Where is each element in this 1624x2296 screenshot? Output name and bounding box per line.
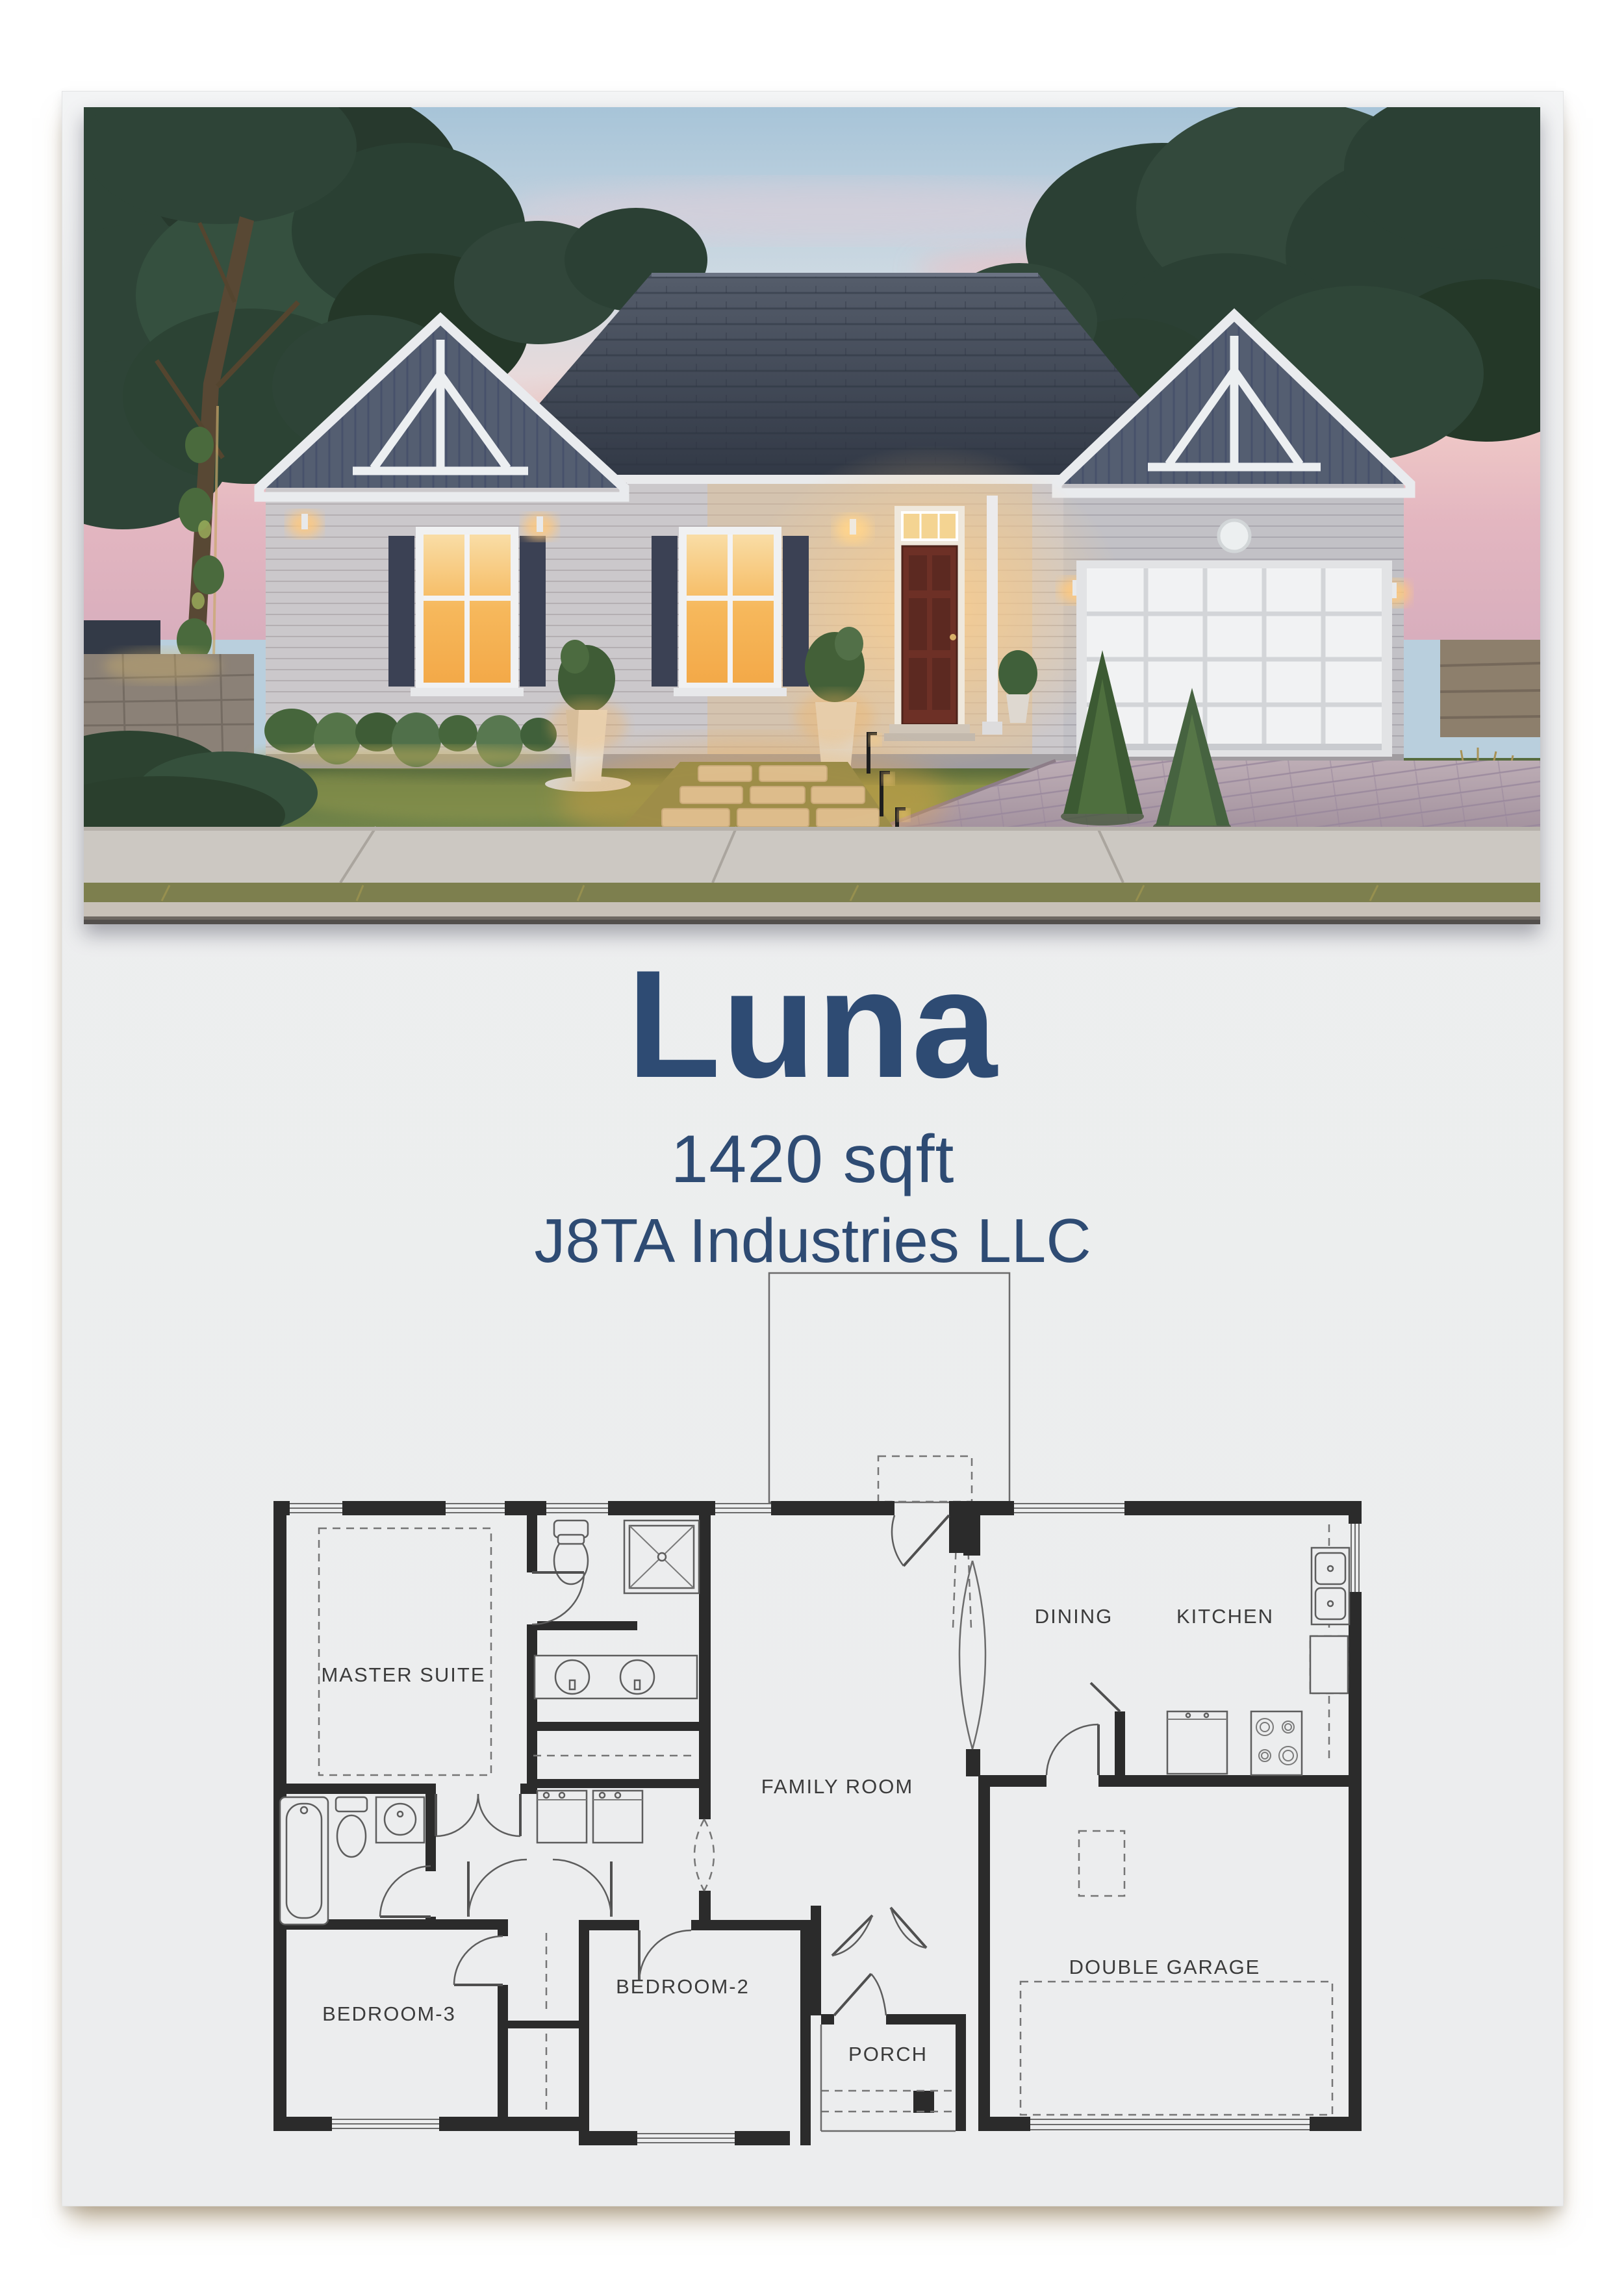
gable-medallion: [1219, 520, 1250, 551]
garage-pad-dashed: [1079, 1831, 1124, 1896]
plan-title: Luna: [62, 948, 1563, 1101]
room-label-bedroom-3: BEDROOM-3: [322, 2002, 456, 2025]
floor-plan-drawing: MASTER SUITE FAMILY ROOM DINING KITCHEN …: [273, 1267, 1365, 2170]
room-labels: MASTER SUITE FAMILY ROOM DINING KITCHEN …: [321, 1605, 1274, 2065]
room-label-kitchen: KITCHEN: [1176, 1605, 1274, 1628]
patio-outline: [769, 1273, 1009, 1502]
room-label-bedroom-2: BEDROOM-2: [616, 1975, 750, 1998]
sidewalk: [84, 827, 1540, 924]
window-right: [652, 527, 809, 696]
bed-dashed: [319, 1528, 491, 1775]
cased-opening: [959, 1561, 972, 1749]
garage-door: [1076, 561, 1392, 757]
builder-name: J8TA Industries LLC: [62, 1210, 1563, 1272]
stoop-dashed: [878, 1456, 972, 1502]
flyer-page: Luna 1420 sqft J8TA Industries LLC: [62, 91, 1564, 2206]
flyer-canvas: Luna 1420 sqft J8TA Industries LLC: [0, 0, 1624, 2296]
windows: [290, 1504, 1359, 2143]
garage-door-dashed: [1021, 1982, 1332, 2115]
room-label-master-suite: MASTER SUITE: [321, 1663, 485, 1686]
fixtures: [280, 1520, 1349, 1924]
window-left: [388, 527, 546, 696]
porch-outline: [821, 2025, 956, 2131]
room-label-family-room: FAMILY ROOM: [761, 1775, 913, 1798]
plan-area: 1420 sqft: [62, 1126, 1563, 1193]
house-photo: [84, 107, 1540, 924]
title-block: Luna 1420 sqft J8TA Industries LLC: [62, 948, 1563, 1272]
floor-plan: MASTER SUITE FAMILY ROOM DINING KITCHEN …: [273, 1267, 1365, 2170]
doors: [380, 1515, 1098, 2015]
room-label-porch: PORCH: [848, 2043, 928, 2065]
house-photo-art: [84, 107, 1540, 924]
room-label-dining: DINING: [1035, 1605, 1113, 1628]
room-label-double-garage: DOUBLE GARAGE: [1069, 1956, 1261, 1978]
